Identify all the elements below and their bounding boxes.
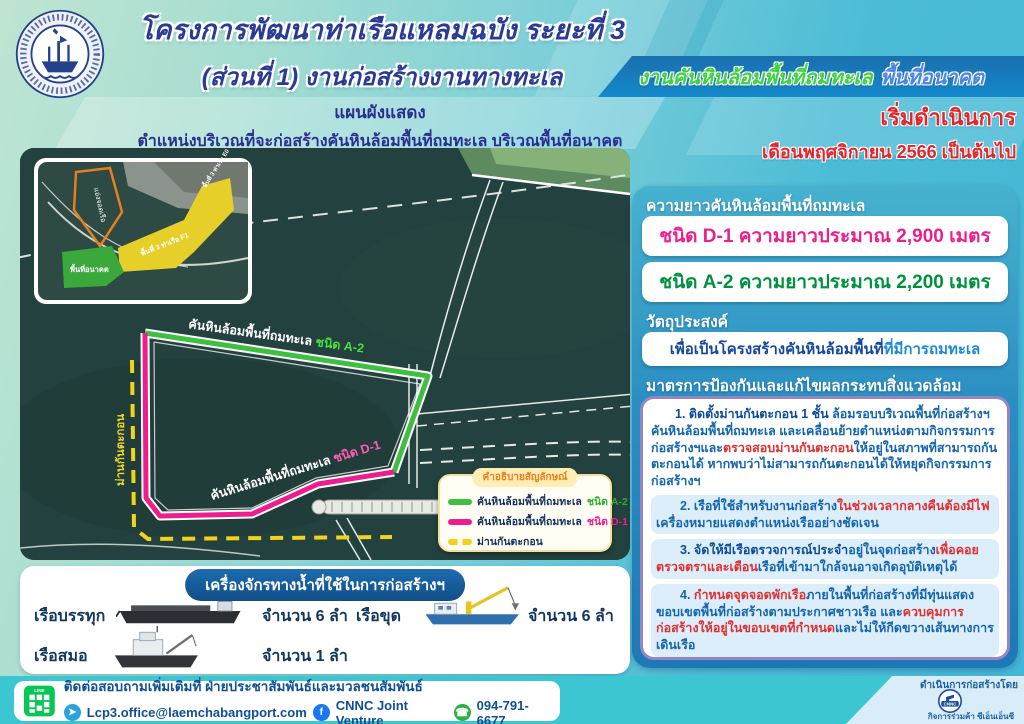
lengths-heading: ความยาวคันหินล้อมพื้นที่ถมทะเล	[646, 193, 865, 218]
builder-name: กิจการร่วมค้า ซีเอ็นเอ็นซี	[928, 710, 1014, 723]
length-d1-text: ชนิด D-1 ความยาวประมาณ 2,900 เมตร	[659, 221, 990, 251]
send-icon: ➤	[64, 704, 81, 721]
legend-label: คันหินล้อมพื้นที่ถมทะเล	[477, 493, 582, 510]
plan-caption: แผนผังแสดง ตำแหน่งบริเวณที่จะก่อสร้างคัน…	[104, 99, 656, 154]
banner-green-text: งานคันหินล้อมพื้นที่ถมทะเล	[638, 61, 872, 93]
label-silt-curtain: ม่านกันตะกอน	[114, 414, 127, 486]
start-line1: เริ่มดำเนินการ	[630, 100, 1016, 135]
banner-blue-text: พื้นที่อนาคต	[881, 61, 984, 93]
legend-swatch-pink	[448, 519, 472, 525]
facebook-icon: f	[313, 704, 330, 721]
phone-icon: ☎	[454, 704, 471, 721]
work-type-banner: งานคันหินล้อมพื้นที่ถมทะเล พื้นที่อนาคต	[598, 56, 1024, 97]
anchor-boat-icon	[108, 624, 212, 672]
poster-title: โครงการพัฒนาท่าเรือแหลมฉบัง ระยะที่ 3 (ส…	[104, 8, 660, 96]
objective-box: เพื่อเป็นโครงสร้างคันหินล้อมพื้นที่ที่มี…	[642, 332, 1008, 366]
machinery-count-barge: จำนวน 6 ลำ	[262, 604, 348, 629]
machinery-label-barge: เรือบรรทุก	[34, 604, 105, 629]
measure-item-1: 1. ติดตั้งม่านกันตะกอน 1 ชั้น ล้อมรอบบริ…	[651, 406, 999, 490]
svg-text:LINE: LINE	[34, 688, 44, 693]
legend-label: ม่านกันตะกอน	[477, 533, 543, 550]
builder-label: ดำเนินการก่อสร้างโดย	[920, 678, 1018, 693]
measures-box: 1. ติดตั้งม่านกันตะกอน 1 ชั้น ล้อมรอบบริ…	[640, 396, 1010, 660]
inset-map: แอ่งจอดเรือ พื้นที่ 3 ท่าเรือ F1 พื้นที่…	[34, 148, 252, 304]
objective-heading: วัตถุประสงค์	[646, 309, 728, 334]
legend-label: คันหินล้อมพื้นที่ถมทะเล	[477, 513, 582, 530]
length-d1-box: ชนิด D-1 ความยาวประมาณ 2,900 เมตร	[642, 216, 1008, 256]
port-authority-logo	[14, 8, 106, 100]
objective-text-light: ที่มีการถมทะเล	[884, 337, 981, 361]
legend-item-d1: คันหินล้อมพื้นที่ถมทะเล ชนิด D-1	[448, 513, 602, 530]
machinery-label-dredger: เรือขุด	[356, 604, 401, 629]
measure-item-3: 3. จัดให้มีเรือตรวจการณ์ประจำอยู่ในจุดก่…	[651, 539, 999, 579]
info-panel: ความยาวคันหินล้อมพื้นที่ถมทะเล ชนิด D-1 …	[632, 186, 1018, 668]
start-notice: เริ่มดำเนินการ เดือนพฤศจิกายน 2566 เป็นต…	[630, 100, 1016, 166]
legend-title: คำอธิบายสัญลักษณ์	[473, 468, 578, 487]
start-line2: เดือนพฤศจิกายน 2566 เป็นต้นไป	[630, 137, 1016, 166]
objective-text-dark: เพื่อเป็นโครงสร้างคันหินล้อมพื้นที่	[670, 337, 884, 361]
legend-type: ชนิด D-1	[587, 513, 628, 530]
machinery-count-dredger: จำนวน 6 ลำ	[528, 604, 614, 629]
contact-email[interactable]: Lcp3.office@laemchabangport.com	[87, 705, 307, 720]
dredger-icon	[420, 582, 530, 630]
legend-swatch-green	[448, 499, 472, 505]
legend-item-a2: คันหินล้อมพื้นที่ถมทะเล ชนิด A-2	[448, 493, 602, 510]
legend-swatch-yellow	[448, 539, 472, 545]
legend-item-curtain: ม่านกันตะกอน	[448, 533, 602, 550]
legend-type: ชนิด A-2	[587, 493, 628, 510]
machinery-panel: เครื่องจักรทางน้ำที่ใช้ในการก่อสร้างฯ เร…	[20, 566, 630, 674]
title-line1: โครงการพัฒนาท่าเรือแหลมฉบัง ระยะที่ 3	[104, 8, 660, 51]
contact-phone[interactable]: 094-791-6677	[477, 698, 550, 724]
inset-future-area-label: พื้นที่อนาคต	[70, 263, 109, 274]
breakwater	[312, 500, 450, 514]
line-qr-icon[interactable]: LINE	[24, 685, 55, 717]
caption-line1: แผนผังแสดง	[104, 99, 656, 126]
machinery-label-anchor-boat: เรือสมอ	[34, 644, 88, 669]
poster-root: โครงการพัฒนาท่าเรือแหลมฉบัง ระยะที่ 3 (ส…	[0, 0, 1024, 724]
contact-heading: ติดต่อสอบถามเพิ่มเติมที่ ฝ่ายประชาสัมพัน…	[64, 675, 550, 697]
contact-box: LINE ติดต่อสอบถามเพิ่มเติมที่ ฝ่ายประชาส…	[14, 681, 560, 721]
map-legend: คำอธิบายสัญลักษณ์ คันหินล้อมพื้นที่ถมทะเ…	[438, 474, 612, 552]
svg-text:CNNC: CNNC	[944, 702, 958, 707]
site-map[interactable]: คันหินล้อมพื้นที่ถมทะเล ชนิด A-2 คันหินล…	[20, 148, 630, 560]
measure-item-4: 4. กำหนดจุดจอดพักเรือภายในพื้นที่ก่อสร้า…	[651, 584, 999, 657]
length-a2-box: ชนิด A-2 ความยาวประมาณ 2,200 เมตร	[642, 262, 1008, 302]
contact-facebook[interactable]: CNNC Joint Venture	[336, 698, 448, 724]
measures-heading: มาตรการป้องกันและแก้ไขผลกระทบสิ่งแวดล้อม	[646, 373, 962, 398]
machinery-count-anchor-boat: จำนวน 1 ลำ	[262, 644, 348, 669]
length-a2-text: ชนิด A-2 ความยาวประมาณ 2,200 เมตร	[659, 267, 990, 297]
measure-item-2: 2. เรือที่ใช้สำหรับงานก่อสร้างในช่วงเวลา…	[651, 495, 999, 535]
title-line2: (ส่วนที่ 1) งานก่อสร้างงานทางทะเล	[104, 57, 660, 96]
